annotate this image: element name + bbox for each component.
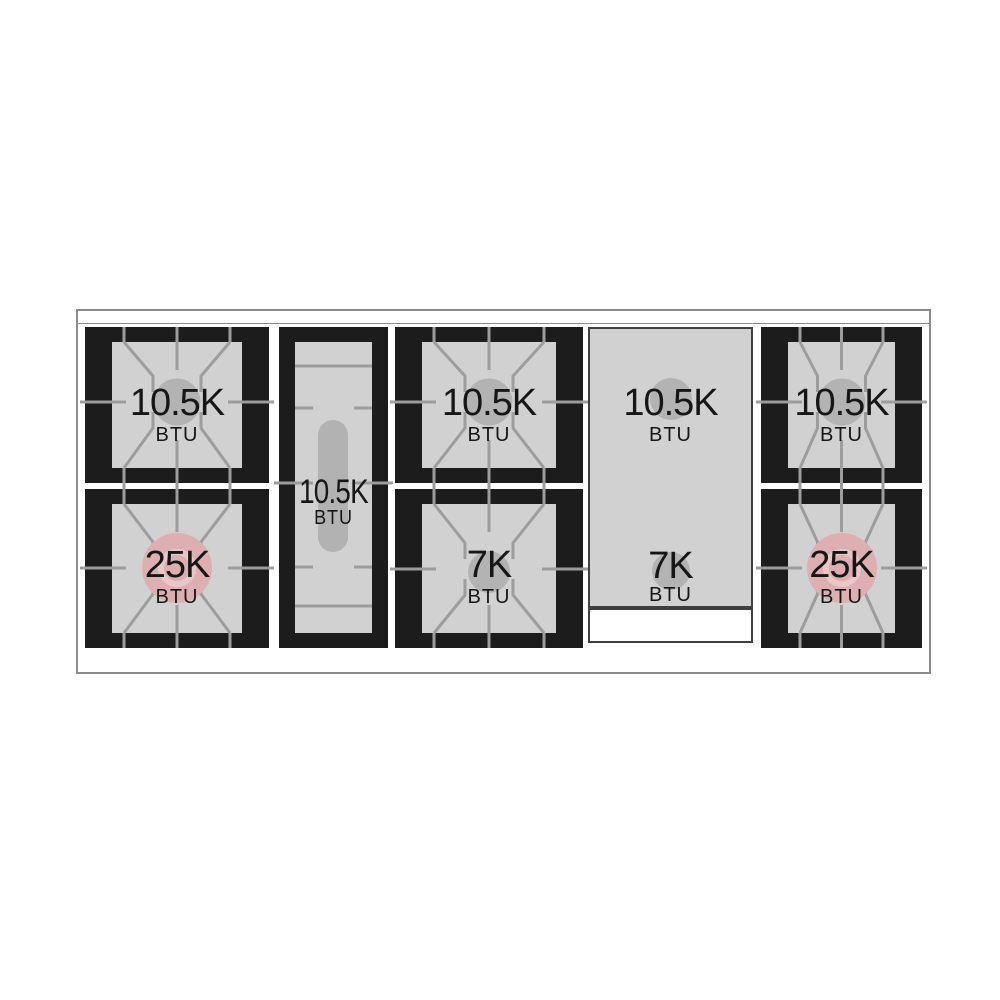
griddle-front-strip bbox=[588, 608, 753, 643]
btu-unit: BTU bbox=[395, 585, 583, 609]
burner-middle-top: 10.5K BTU bbox=[395, 327, 583, 483]
btu-value: 10.5K bbox=[395, 383, 583, 423]
btu-value: 10.5K bbox=[590, 383, 751, 423]
burner-center-oval-section: 10.5K BTU bbox=[279, 327, 388, 648]
btu-value: 25K bbox=[761, 545, 922, 585]
burner-left-bottom: 25K BTU bbox=[85, 489, 269, 648]
btu-value: 10.5K bbox=[85, 383, 269, 423]
cooktop-top-edge-line bbox=[78, 323, 929, 324]
btu-unit: BTU bbox=[590, 423, 751, 447]
burner-middle-bottom: 7K BTU bbox=[395, 489, 583, 648]
btu-unit: BTU bbox=[395, 423, 583, 447]
btu-unit: BTU bbox=[761, 423, 922, 447]
btu-value: 10.5K bbox=[761, 383, 922, 423]
btu-unit: BTU bbox=[85, 585, 269, 609]
btu-unit: BTU bbox=[85, 423, 269, 447]
griddle-plate: 10.5K BTU 7K BTU bbox=[588, 327, 753, 608]
btu-unit: BTU bbox=[284, 506, 382, 530]
btu-unit: BTU bbox=[761, 585, 922, 609]
btu-value: 7K bbox=[395, 545, 583, 585]
btu-unit: BTU bbox=[590, 583, 751, 607]
btu-value: 25K bbox=[85, 545, 269, 585]
burner-right-top: 10.5K BTU bbox=[761, 327, 922, 483]
cooktop-outline: 10.5K BTU 25K BTU 10.5K BTU 10 bbox=[76, 309, 931, 674]
burner-right-bottom: 25K BTU bbox=[761, 489, 922, 648]
btu-value: 7K bbox=[590, 546, 751, 586]
burner-left-top: 10.5K BTU bbox=[85, 327, 269, 483]
cooktop-diagram: 10.5K BTU 25K BTU 10.5K BTU 10 bbox=[0, 0, 1000, 1000]
